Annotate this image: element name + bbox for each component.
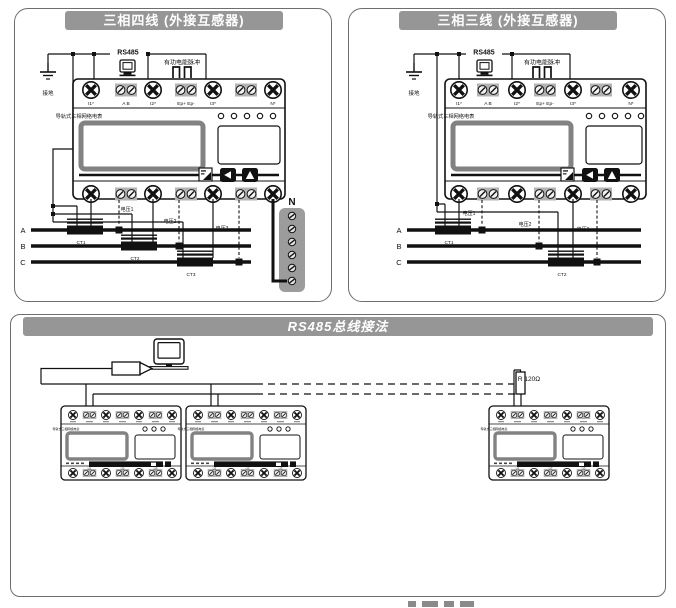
diagram-3p3w: 接地 RS485 有功电能脉冲 I1* A B I2* Ep+ Ep- I3* … bbox=[349, 9, 664, 300]
ct2 bbox=[121, 235, 157, 251]
meter-face-label: 导轨式三相网络电表 bbox=[480, 426, 507, 431]
pulse-label: 有功电能脉冲 bbox=[164, 59, 200, 67]
terminal-label: Ep+ Ep- bbox=[177, 101, 195, 107]
neutral-terminal-strip: N bbox=[273, 197, 305, 292]
terminal-label: Ep+ Ep- bbox=[536, 101, 554, 107]
lcd-display bbox=[81, 123, 203, 169]
diagram-3p4w: 接地 RS485 有功电能脉冲 I1* A B I2* Ep+ Ep- I3* … bbox=[15, 9, 330, 300]
terminal-label: N* bbox=[628, 101, 633, 107]
voltage-label: 电压2 bbox=[164, 218, 177, 225]
meter-face-label: 导轨式三相网络电表 bbox=[56, 112, 104, 120]
terminal-label: I3* bbox=[570, 101, 576, 107]
terminal-label: U2 bbox=[549, 467, 553, 471]
terminal-label: U2 bbox=[246, 467, 250, 471]
terminal-label: U2 bbox=[121, 467, 125, 471]
terminal-label: U1 bbox=[516, 467, 520, 471]
lcd-display bbox=[453, 123, 571, 169]
phase-label: C bbox=[20, 258, 26, 267]
rs485-label: RS485 bbox=[117, 50, 139, 57]
neutral-strip-label: N bbox=[288, 197, 295, 208]
meter-face-label: 导轨式三相网络电表 bbox=[52, 426, 79, 431]
ct1 bbox=[67, 219, 103, 235]
bus-meter-2: 导轨式三相网络电表 U1 U2 U3 bbox=[177, 406, 306, 480]
ground-symbol bbox=[40, 63, 56, 79]
ct-label: CT1 bbox=[444, 240, 453, 246]
meter-face-label: 导轨式三相网络电表 bbox=[428, 112, 476, 120]
bus-meter-3: 导轨式三相网络电表 U1 U2 U3 bbox=[480, 406, 609, 480]
pulse-label: 有功电能脉冲 bbox=[524, 59, 560, 67]
rs485-connector-icon bbox=[477, 60, 493, 76]
left-arrow-button-icon bbox=[220, 168, 236, 182]
voltage-label: 电压2 bbox=[519, 221, 532, 228]
terminal-label: I2* bbox=[150, 101, 156, 107]
terminal-label: U3 bbox=[154, 467, 158, 471]
phase-label: B bbox=[20, 242, 25, 251]
terminal-label: A B bbox=[122, 101, 129, 107]
terminal-label: U1 bbox=[88, 467, 92, 471]
meter-3p4w: I1* A B I2* Ep+ Ep- I3* N* 导轨式三相网络电表 I1 … bbox=[56, 79, 285, 202]
ct-label: CT3 bbox=[186, 272, 195, 278]
rs485-label: RS485 bbox=[473, 50, 495, 57]
phase-label: A bbox=[396, 226, 401, 235]
wiring-instructions-page: 三相四线 (外接互感器) 接地 RS485 有功电能脉冲 bbox=[0, 0, 676, 608]
up-arrow-button-icon bbox=[604, 168, 620, 182]
rs485-connector-icon bbox=[120, 60, 136, 76]
termination-resistor: R 120Ω bbox=[516, 372, 540, 394]
phase-lines bbox=[407, 230, 641, 262]
resistor-label: R 120Ω bbox=[518, 376, 540, 383]
set-button-icon bbox=[561, 168, 574, 181]
cropped-caption-fragments bbox=[408, 601, 528, 608]
terminal-label: A B bbox=[484, 101, 491, 107]
voltage-label: 电压1 bbox=[463, 210, 476, 217]
pulse-icon bbox=[533, 67, 551, 78]
ct-label: CT2 bbox=[557, 272, 566, 278]
side-window bbox=[218, 126, 280, 164]
terminal-label: I3* bbox=[210, 101, 216, 107]
terminal-label: U3 bbox=[279, 467, 283, 471]
terminal-label: I2* bbox=[514, 101, 520, 107]
meter-3p3w: I1* A B I2* Ep+ Ep- I3* N* 导轨式三相网络电表 I1 … bbox=[428, 79, 646, 202]
side-window bbox=[586, 126, 642, 164]
terminal-label: I1* bbox=[456, 101, 462, 107]
meter-face-label: 导轨式三相网络电表 bbox=[177, 426, 204, 431]
ct2 bbox=[548, 251, 584, 267]
ct-label: CT1 bbox=[76, 240, 85, 246]
ct-label: CT2 bbox=[130, 256, 139, 262]
up-arrow-button-icon bbox=[242, 168, 258, 182]
terminal-label: I1* bbox=[88, 101, 94, 107]
terminal-label: U1 bbox=[213, 467, 217, 471]
diagram-rs485-bus: R 120Ω 导轨式三相网络电表 U1 U2 U3 导轨式三相网络电表 U1 U… bbox=[11, 315, 664, 595]
set-button-icon bbox=[199, 168, 212, 181]
voltage-label: 电压1 bbox=[121, 206, 134, 213]
terminal-label: U3 bbox=[582, 467, 586, 471]
phase-label: C bbox=[396, 258, 402, 267]
left-arrow-button-icon bbox=[582, 168, 598, 182]
panel-rs485-bus: RS485总线接法 R 120Ω 导轨式三相网络电表 U1 U bbox=[10, 314, 666, 597]
phase-label: A bbox=[20, 226, 25, 235]
ground-label: 接地 bbox=[408, 89, 420, 97]
ground-symbol bbox=[406, 63, 422, 79]
phase-label: B bbox=[396, 242, 401, 251]
bus-wiring-dashed bbox=[256, 384, 521, 394]
pulse-icon bbox=[173, 67, 191, 78]
bus-meter-1: 导轨式三相网络电表 U1 U2 U3 bbox=[52, 406, 181, 480]
rs485-converter-icon bbox=[112, 362, 152, 375]
ct1 bbox=[435, 219, 471, 235]
panel-3p3w: 三相三线 (外接互感器) 接地 RS485 有功电能脉冲 bbox=[348, 8, 666, 302]
ground-label: 接地 bbox=[42, 89, 54, 97]
terminal-label: N* bbox=[270, 101, 275, 107]
panel-3p4w: 三相四线 (外接互感器) 接地 RS485 有功电能脉冲 bbox=[14, 8, 332, 302]
computer-icon bbox=[150, 339, 188, 369]
